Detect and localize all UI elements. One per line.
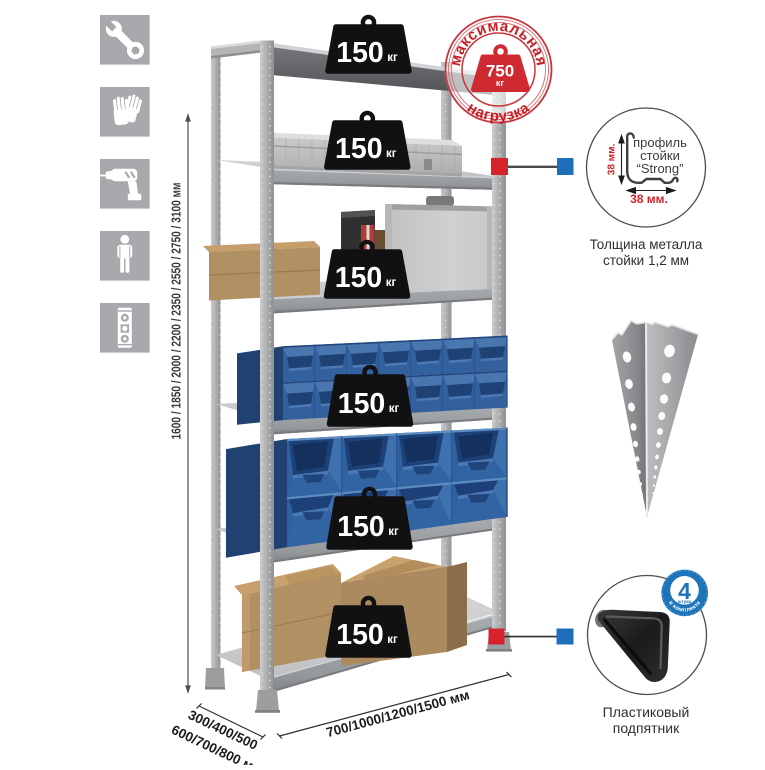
svg-text:кг: кг [387, 52, 398, 64]
svg-text:стойки 1,2 мм: стойки 1,2 мм [603, 253, 689, 268]
svg-text:38 мм.: 38 мм. [607, 144, 618, 176]
svg-text:150: 150 [336, 619, 384, 651]
svg-text:кг: кг [389, 403, 400, 415]
svg-text:кг: кг [388, 526, 399, 538]
svg-text:подпятник: подпятник [613, 720, 680, 736]
svg-text:150: 150 [338, 388, 386, 420]
svg-text:“Strong”: “Strong” [637, 161, 684, 176]
svg-text:1600 / 1850 / 2000 / 2200 / 23: 1600 / 1850 / 2000 / 2200 / 2350 / 2550 … [169, 183, 184, 440]
svg-text:кг: кг [387, 634, 398, 646]
svg-text:штуки: штуки [678, 599, 692, 604]
svg-text:кг: кг [496, 78, 505, 88]
svg-text:700/1000/1200/1500 мм: 700/1000/1200/1500 мм [325, 687, 471, 740]
svg-text:150: 150 [335, 262, 383, 294]
svg-text:38 мм.: 38 мм. [630, 192, 668, 206]
svg-text:Толщина металла: Толщина металла [590, 237, 703, 252]
svg-text:Пластиковый: Пластиковый [603, 704, 690, 720]
svg-text:150: 150 [337, 511, 385, 543]
svg-text:кг: кг [386, 277, 397, 289]
svg-text:кг: кг [386, 148, 397, 160]
svg-text:150: 150 [336, 37, 384, 69]
svg-text:150: 150 [335, 133, 383, 165]
